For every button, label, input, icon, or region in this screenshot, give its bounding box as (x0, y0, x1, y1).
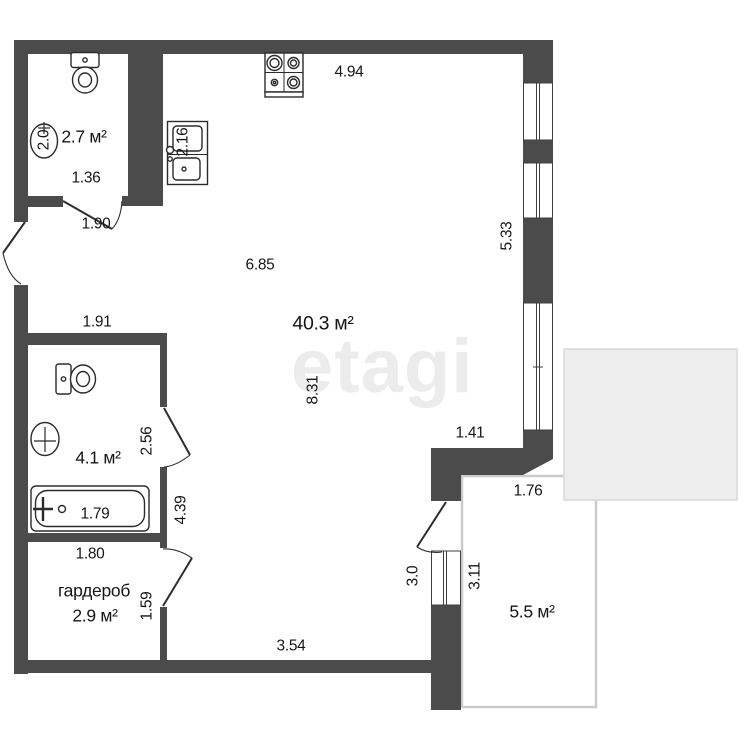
wall-bath-right-seg1 (160, 345, 167, 407)
wall-left-upper (14, 40, 28, 222)
window-right-2 (524, 163, 553, 218)
dim-living-width: 6.85 (246, 257, 275, 273)
wall-bottom (14, 660, 432, 673)
wall-right-seg1 (523, 54, 553, 83)
stove-icon (265, 53, 303, 97)
dim-windows-right: 5.33 (499, 222, 515, 251)
wall-right-seg2 (523, 140, 553, 163)
toilet-icon-bathroom (56, 364, 96, 394)
wall-wc-bottom (28, 196, 63, 207)
window-right-1 (524, 83, 553, 140)
wall-balcony-upper (431, 475, 461, 501)
wall-right-seg3 (523, 218, 553, 303)
gray-overlay-square (564, 349, 737, 500)
room-area-wardrobe: 2.9 м² (72, 607, 117, 625)
room-name-wardrobe: гардероб (58, 582, 130, 600)
dim-bath-door: 2.56 (139, 427, 155, 456)
wall-bath-right-seg2 (160, 467, 167, 548)
window-right-3 (524, 303, 553, 430)
dim-bath-height: 4.39 (173, 496, 189, 525)
wall-right-seg4 (523, 430, 553, 448)
dim-bath-top: 1.91 (83, 314, 112, 330)
wall-bath-wardrobe-divider (28, 533, 160, 542)
window-balcony (432, 551, 461, 605)
wall-balcony-lower (431, 605, 461, 710)
dim-wc-width: 1.36 (72, 170, 101, 186)
room-area-living: 40.3 м² (292, 314, 353, 334)
dim-living-bottom: 3.54 (277, 638, 306, 654)
dim-balcony-door: 3.0 (405, 566, 421, 587)
balcony-outline (462, 476, 596, 707)
wall-left-lower (14, 285, 28, 674)
dim-wardrobe-width: 1.80 (76, 546, 105, 562)
room-area-balcony: 5.5 м² (509, 603, 554, 621)
room-area-bathroom: 4.1 м² (75, 449, 120, 467)
toilet-icon (71, 53, 99, 94)
wall-bath-top (28, 333, 167, 345)
dim-living-height: 8.31 (305, 376, 321, 405)
wall-bath-right-seg3 (160, 607, 167, 660)
wall-wc-kitchen (128, 54, 163, 198)
sink-round-icon-bathroom (31, 423, 59, 456)
dim-bath-width: 1.79 (81, 506, 110, 522)
wall-corner-bevel (431, 448, 553, 475)
dim-balcony-window: 3.11 (467, 562, 483, 590)
dim-wardrobe-door: 1.59 (139, 592, 155, 621)
door-wardrobe (163, 549, 192, 606)
fixtures (31, 53, 304, 532)
door-balcony (417, 502, 446, 552)
dim-kitchen-sink: 2.16 (175, 128, 191, 157)
door-entrance (3, 222, 25, 284)
dim-balcony-top: 1.76 (514, 483, 543, 499)
dim-kitchen-top: 4.94 (335, 64, 364, 80)
wall-wc-kitchen-stub (122, 196, 163, 206)
room-area-wc: 2.7 м² (61, 128, 106, 146)
dim-niche: 1.41 (456, 425, 485, 441)
door-bathroom (164, 408, 190, 467)
floor-plan: etagi 4.94 2.7 м² 2.0 1.36 1.90 2.16 6.8… (0, 0, 750, 750)
dim-wc-depth: 2.0 (36, 130, 52, 151)
dim-wc-door: 1.90 (82, 216, 111, 232)
